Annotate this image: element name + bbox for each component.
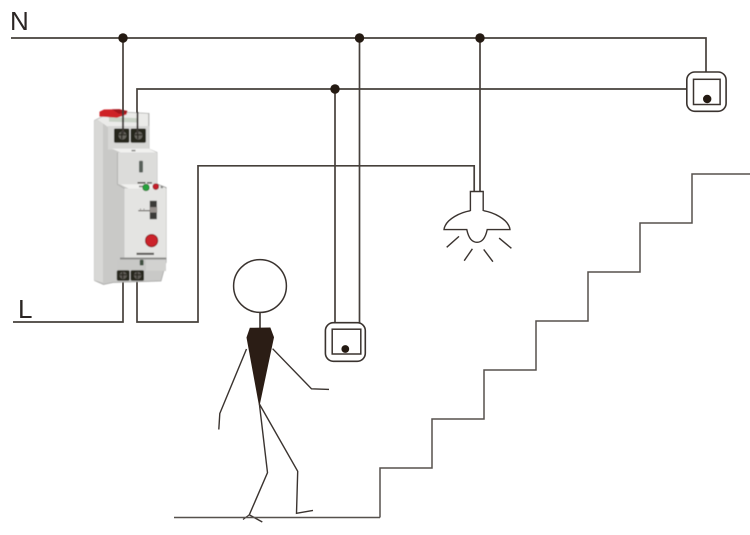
- svg-text:L: L: [18, 294, 32, 324]
- svg-text:N: N: [10, 6, 29, 36]
